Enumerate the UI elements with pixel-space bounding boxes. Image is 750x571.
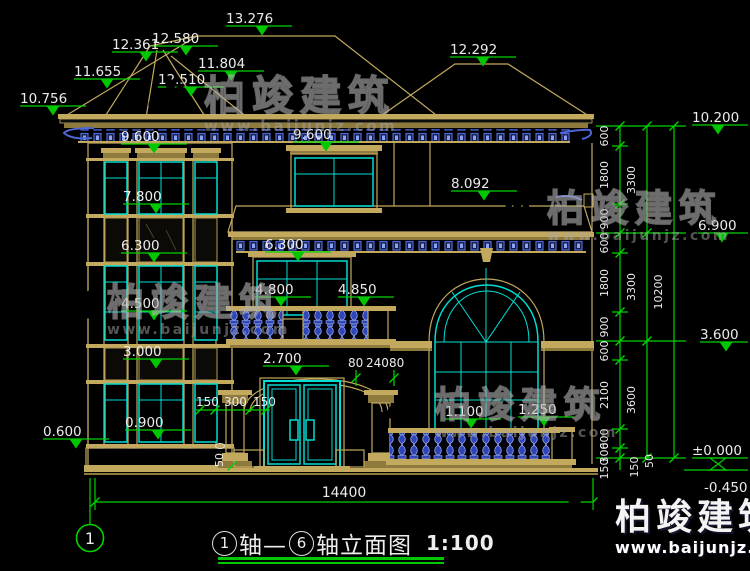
dim-label: 10200 — [652, 275, 665, 310]
mid-band-tiles — [228, 206, 592, 232]
dim-label: 50 — [643, 454, 656, 468]
balcony-balustrade — [226, 306, 396, 348]
dim-label: 300 — [224, 395, 247, 409]
elevation-label: 11.655 — [74, 64, 121, 80]
dim-label: 600 — [598, 233, 611, 254]
cad-elevation-svg: 13.276 12.580 12.361 11.804 12.510 11.65… — [0, 0, 750, 571]
mid-band-scroll — [556, 196, 582, 200]
dim-label: 2100 — [598, 381, 611, 409]
elevation-label: 3.000 — [123, 344, 162, 360]
elevation-label: 11.804 — [198, 56, 245, 72]
entrance — [218, 378, 398, 470]
tower-pilaster — [184, 160, 193, 448]
elevation-label: 12.510 — [158, 72, 205, 88]
dim-label: 3300 — [625, 166, 638, 194]
elevation-label: 2.700 — [263, 351, 302, 367]
right-dimension-chain: 600 1800 900 600 1800 900 600 2100 600 3… — [596, 122, 686, 480]
dim-label: 80 — [348, 356, 363, 370]
dim-label: 240 — [366, 356, 389, 370]
dim-label: 150 — [598, 459, 611, 480]
keystone — [480, 248, 493, 262]
dim-label: 600 — [598, 126, 611, 147]
elevation-label: 6.300 — [265, 237, 304, 253]
elevation-label: 0.600 — [43, 424, 82, 440]
elevation-label: ±0.000 — [692, 443, 742, 459]
dim-label: 1800 — [598, 161, 611, 189]
elevation-label: 9.600 — [293, 127, 332, 143]
elevation-drawing-canvas: 13.276 12.580 12.361 11.804 12.510 11.65… — [0, 0, 750, 571]
elevation-label: -0.450 — [704, 480, 748, 496]
title-underline-thin — [218, 562, 444, 564]
elevation-label: 13.276 — [226, 11, 273, 27]
drawing-title: 1 轴— 6 轴立面图 1:100 — [212, 526, 495, 560]
tower-pilaster — [88, 160, 104, 448]
elevation-label: 0.900 — [125, 415, 164, 431]
center-third-floor-window — [286, 145, 382, 213]
elevation-label: 6.300 — [121, 238, 160, 254]
elevation-label: 1.100 — [445, 404, 484, 420]
elevation-label: 10.200 — [692, 110, 739, 126]
eave-fascia — [58, 114, 594, 119]
elevation-label: 4.500 — [121, 296, 160, 312]
porch-balustrade — [386, 427, 576, 468]
dim-label: 900 — [598, 209, 611, 230]
dim-label: 1800 — [598, 269, 611, 297]
elevation-label: 4.800 — [255, 282, 294, 298]
roof-right-hip — [378, 64, 592, 118]
title-axis-start: 1 — [212, 531, 237, 556]
dim-label: 80 — [389, 356, 404, 370]
elevation-label: 12.292 — [450, 42, 497, 58]
total-width-label: 14400 — [322, 485, 367, 501]
dim-label: 50 — [213, 453, 226, 467]
dim-label: 150 — [628, 457, 641, 478]
title-axis-end: 6 — [289, 531, 314, 556]
elevation-label: 6.900 — [698, 218, 737, 234]
elevation-label: 9.600 — [121, 129, 160, 145]
title-segment: 轴立面图 — [316, 526, 412, 560]
title-underline-thick — [218, 557, 444, 560]
right-elevation-markers: 10.200 6.900 3.600 ±0.000 -0.450 — [684, 110, 748, 496]
elevation-label: 10.756 — [20, 91, 67, 107]
elevation-label: 4.850 — [338, 282, 377, 298]
door-handle — [290, 420, 298, 440]
elevation-label: 12.361 — [112, 37, 159, 53]
axis-bubble-number: 1 — [85, 529, 95, 548]
dim-label: 150 — [253, 395, 276, 409]
dim-label: 3600 — [625, 386, 638, 414]
elevation-label: 7.800 — [123, 189, 162, 205]
title-segment: 轴— — [239, 526, 287, 560]
roof-elevation-markers: 13.276 12.580 12.361 11.804 12.510 11.65… — [20, 11, 516, 116]
dim-label: 3300 — [625, 273, 638, 301]
porch-pedestal — [552, 430, 572, 460]
ground-line — [84, 468, 598, 475]
elevation-label: 1.250 — [518, 402, 557, 418]
elevation-label: 8.092 — [451, 176, 490, 192]
dim-label: 600 — [598, 341, 611, 362]
dim-label: 150 — [196, 395, 219, 409]
tower-brick-base — [86, 448, 234, 467]
eave-shadow — [60, 119, 592, 123]
elevation-label: 3.600 — [700, 327, 739, 343]
door-handle — [306, 420, 314, 440]
dim-label: 900 — [598, 317, 611, 338]
title-scale: 1:100 — [426, 531, 495, 555]
